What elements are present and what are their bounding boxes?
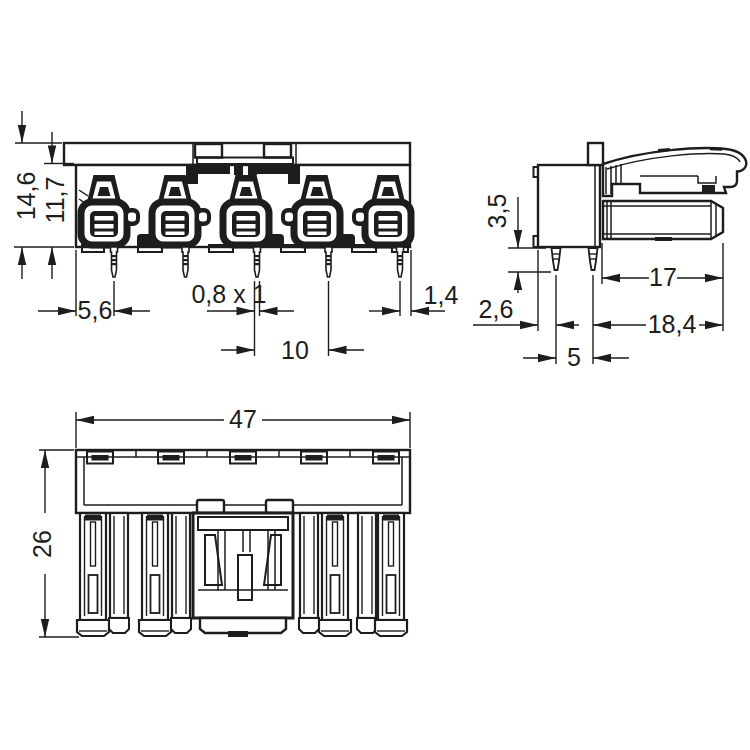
dim-front-pin-pitch: 10 — [281, 336, 309, 364]
drawing-svg: 14,6 11,7 5,6 0,8 x 1 10 1,4 — [0, 0, 750, 750]
dim-side-pin-length: 3,5 — [483, 194, 511, 229]
side-view: 3,5 2,6 17 18,4 5 — [473, 143, 746, 371]
dim-side-pin-spacing: 5 — [567, 343, 581, 371]
connector-dimension-drawing: 14,6 11,7 5,6 0,8 x 1 10 1,4 — [0, 0, 750, 750]
side-pins — [552, 248, 598, 270]
dim-front-pin-cross-section: 0,8 x 1 — [191, 280, 266, 308]
dim-side-overall-depth: 18,4 — [648, 310, 697, 338]
side-housing — [534, 143, 604, 247]
dim-side-plug-depth: 17 — [649, 263, 677, 291]
dim-front-last-pin-offset: 1,4 — [424, 281, 459, 309]
side-latch-arm — [603, 147, 746, 196]
dim-front-first-pin-offset: 5,6 — [78, 296, 113, 324]
front-view: 14,6 11,7 5,6 0,8 x 1 10 1,4 — [12, 111, 459, 364]
dim-front-total-height: 14,6 — [12, 172, 40, 221]
dim-front-body-height: 11,7 — [41, 177, 69, 224]
bottom-center-block — [193, 500, 293, 637]
dim-bottom-overall-height: 26 — [28, 530, 56, 558]
dim-side-pin-setback: 2,6 — [479, 295, 514, 323]
side-plug-body — [603, 201, 723, 241]
bottom-view: 47 26 — [28, 405, 410, 637]
dim-bottom-overall-width: 47 — [229, 405, 257, 433]
